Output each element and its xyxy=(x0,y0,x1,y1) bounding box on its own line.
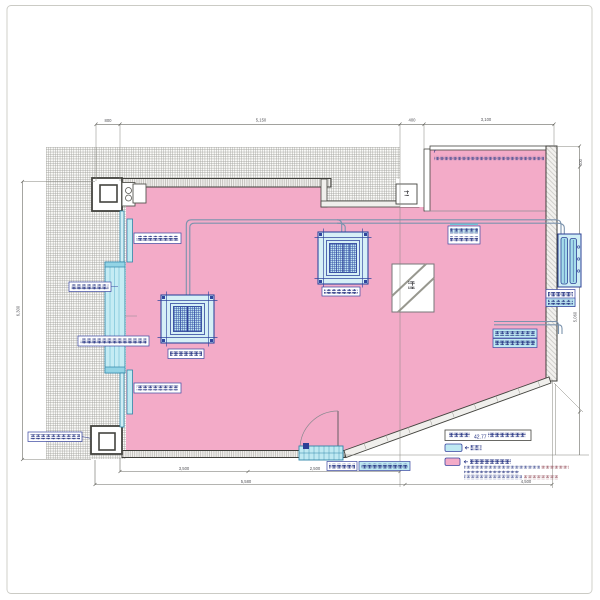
svg-text:3,500: 3,500 xyxy=(179,466,190,471)
svg-text:4,500: 4,500 xyxy=(521,479,532,484)
svg-text:5,060: 5,060 xyxy=(573,311,578,322)
svg-text:400: 400 xyxy=(409,118,417,123)
svg-text:5,580: 5,580 xyxy=(241,479,252,484)
svg-text:42.77: 42.77 xyxy=(474,434,487,440)
svg-text:6,300: 6,300 xyxy=(16,305,21,316)
svg-text:800: 800 xyxy=(105,118,113,123)
svg-text:3,100: 3,100 xyxy=(481,117,492,122)
svg-text:2,500: 2,500 xyxy=(310,466,321,471)
svg-text:5,150: 5,150 xyxy=(256,118,267,123)
svg-text:400: 400 xyxy=(578,158,583,166)
